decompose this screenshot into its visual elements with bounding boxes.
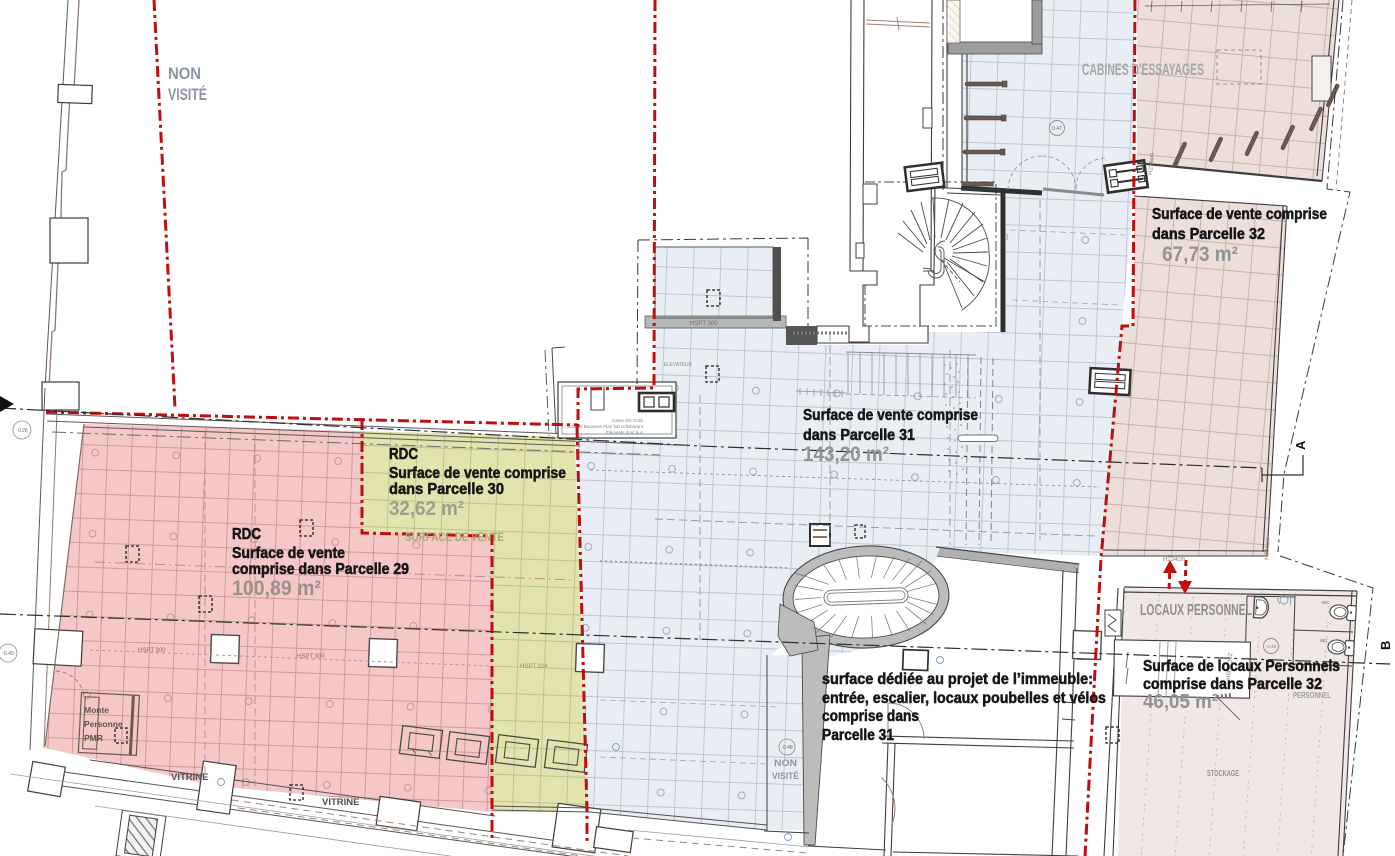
svg-text:HSPT 300: HSPT 300 bbox=[138, 648, 166, 654]
svg-text:dans Parcelle 30: dans Parcelle 30 bbox=[389, 481, 504, 498]
svg-text:WC: WC bbox=[1320, 638, 1328, 643]
svg-text:Surface de vente comprise: Surface de vente comprise bbox=[803, 407, 978, 424]
svg-text:NON: NON bbox=[168, 64, 201, 83]
svg-text:NON: NON bbox=[774, 758, 797, 768]
svg-text:RDC: RDC bbox=[232, 526, 261, 543]
svg-text:STOCKAGE: STOCKAGE bbox=[1207, 768, 1239, 778]
svg-text:dans Parcelle 32: dans Parcelle 32 bbox=[1152, 226, 1265, 243]
svg-text:B: B bbox=[1378, 641, 1393, 650]
svg-text:SURFACE DE VENTE: SURFACE DE VENTE bbox=[405, 530, 504, 544]
svg-text:WC: WC bbox=[1322, 600, 1330, 605]
svg-text:H234cm: H234cm bbox=[1163, 557, 1185, 563]
svg-text:HSPT 300: HSPT 300 bbox=[297, 654, 325, 660]
svg-text:Parcelle 31: Parcelle 31 bbox=[822, 727, 894, 744]
svg-text:Surface de vente: Surface de vente bbox=[232, 545, 345, 562]
svg-text:ELEVATEUR: ELEVATEUR bbox=[664, 362, 692, 368]
svg-text:Monte: Monte bbox=[84, 705, 109, 715]
svg-text:HSPT 300: HSPT 300 bbox=[690, 321, 718, 327]
svg-text:Surface de vente comprise: Surface de vente comprise bbox=[1152, 206, 1327, 223]
svg-text:VISITÉ: VISITÉ bbox=[168, 85, 207, 104]
svg-text:entrée, escalier, locaux poube: entrée, escalier, locaux poubelles et vé… bbox=[822, 690, 1106, 707]
svg-text:VITRINE: VITRINE bbox=[171, 772, 208, 783]
svg-text:PMR: PMR bbox=[84, 733, 103, 743]
svg-text:A: A bbox=[1293, 440, 1308, 450]
svg-text:CABINES D'ESSAYAGES: CABINES D'ESSAYAGES bbox=[1082, 60, 1204, 79]
svg-text:comprise dans Parcelle 29: comprise dans Parcelle 29 bbox=[232, 561, 409, 578]
svg-text:Surface de locaux Personnels: Surface de locaux Personnels bbox=[1143, 658, 1340, 675]
svg-text:HSPT 324: HSPT 324 bbox=[520, 664, 548, 670]
svg-text:-0.26: -0.26 bbox=[16, 428, 28, 434]
svg-text:46,05 m²: 46,05 m² bbox=[1143, 691, 1218, 713]
svg-text:Gaine Elé Colis: Gaine Elé Colis bbox=[612, 418, 644, 423]
svg-text:32,62 m²: 32,62 m² bbox=[389, 498, 464, 520]
svg-text:67,73 m²: 67,73 m² bbox=[1162, 243, 1238, 266]
svg-text:RDC: RDC bbox=[389, 446, 418, 463]
svg-text:-0.48: -0.48 bbox=[1266, 644, 1277, 649]
svg-text:PERSONNEL: PERSONNEL bbox=[1293, 690, 1331, 700]
svg-text:143,20 m²: 143,20 m² bbox=[803, 443, 889, 466]
svg-text:0.47: 0.47 bbox=[1052, 126, 1062, 132]
svg-text:dans Parcelle 31: dans Parcelle 31 bbox=[803, 427, 915, 444]
svg-text:-0.40: -0.40 bbox=[2, 651, 14, 657]
svg-text:VITRINE: VITRINE bbox=[322, 797, 359, 808]
svg-text:100,89 m²: 100,89 m² bbox=[232, 577, 321, 600]
svg-text:VISITÉ: VISITÉ bbox=[772, 771, 799, 781]
svg-text:-0.48: -0.48 bbox=[781, 745, 793, 751]
svg-text:comprise dans: comprise dans bbox=[822, 708, 919, 725]
svg-text:surface dédiée au projet de l’: surface dédiée au projet de l’immeuble: bbox=[822, 671, 1093, 688]
svg-text:Surface de vente comprise: Surface de vente comprise bbox=[389, 465, 566, 482]
svg-text:Eléments dont bus: Eléments dont bus bbox=[606, 430, 644, 435]
svg-text:LOCAUX PERSONNEL: LOCAUX PERSONNEL bbox=[1140, 602, 1252, 619]
